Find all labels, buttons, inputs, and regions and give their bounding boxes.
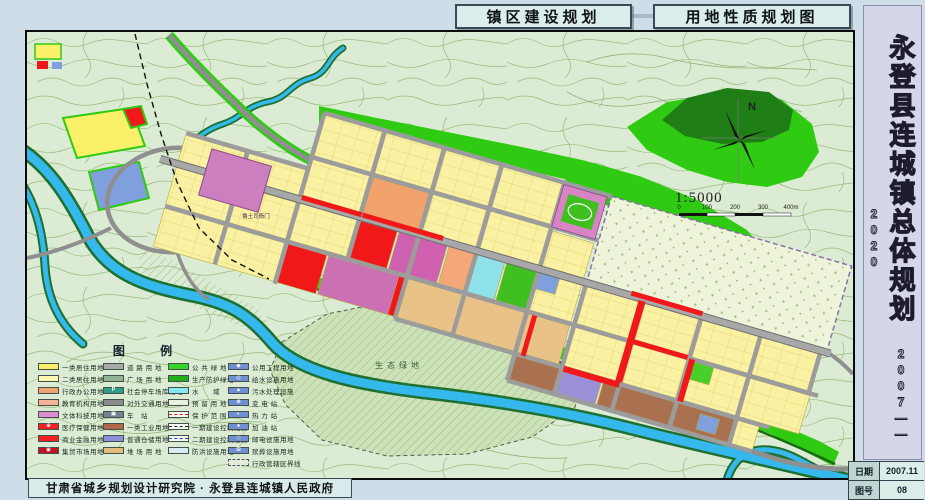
sheet-title-right-text: 用地性质规划图 [685,6,818,27]
date-label: 日期 [849,462,879,480]
north-label: N [748,101,756,113]
map-canvas: 生态绿地 鲁土司衙门 N 1:5000 0100200300400m [27,32,853,478]
sidebar: 永登县连城镇总体规划 2007——2020 [863,5,922,460]
footer-credit: 甘肃省城乡规划设计研究院 · 永登县连城镇人民政府 [28,478,352,498]
yamen-label: 鲁土司衙门 [242,212,270,220]
sheet-title-right: 用地性质规划图 [653,4,851,29]
scale-tick-label: 100 [702,205,713,211]
footer-credit-text: 甘肃省城乡规划设计研究院 · 永登县连城镇人民政府 [46,480,334,496]
date-table: 日期 2007.11 图号 08 [848,461,924,500]
date-value: 2007.11 [880,462,924,480]
scale-tick-label: 400m [783,205,798,211]
map-frame: 生态绿地 鲁土司衙门 N 1:5000 0100200300400m [25,30,855,480]
scale-tick-label: 200 [730,205,741,211]
sheet-number-label: 图号 [849,481,879,499]
sheet-vertical-title: 永登县连城镇总体规划 2007——2020 [865,18,920,459]
plan-sheet: { "header": { "title_left": "镇区建设规划", "t… [0,0,925,500]
scale-tick-label: 300 [758,205,769,211]
title-connector [629,14,653,18]
vertical-title-text: 永登县连城镇总体规划 [886,34,916,324]
sheet-title-left: 镇区建设规划 [455,4,632,29]
sheet-number-value: 08 [880,481,924,499]
eco-green-label: 生态绿地 [375,360,423,370]
sheet-title-left-text: 镇区建设规划 [486,6,600,27]
scale-ratio: 1:5000 [675,190,723,206]
